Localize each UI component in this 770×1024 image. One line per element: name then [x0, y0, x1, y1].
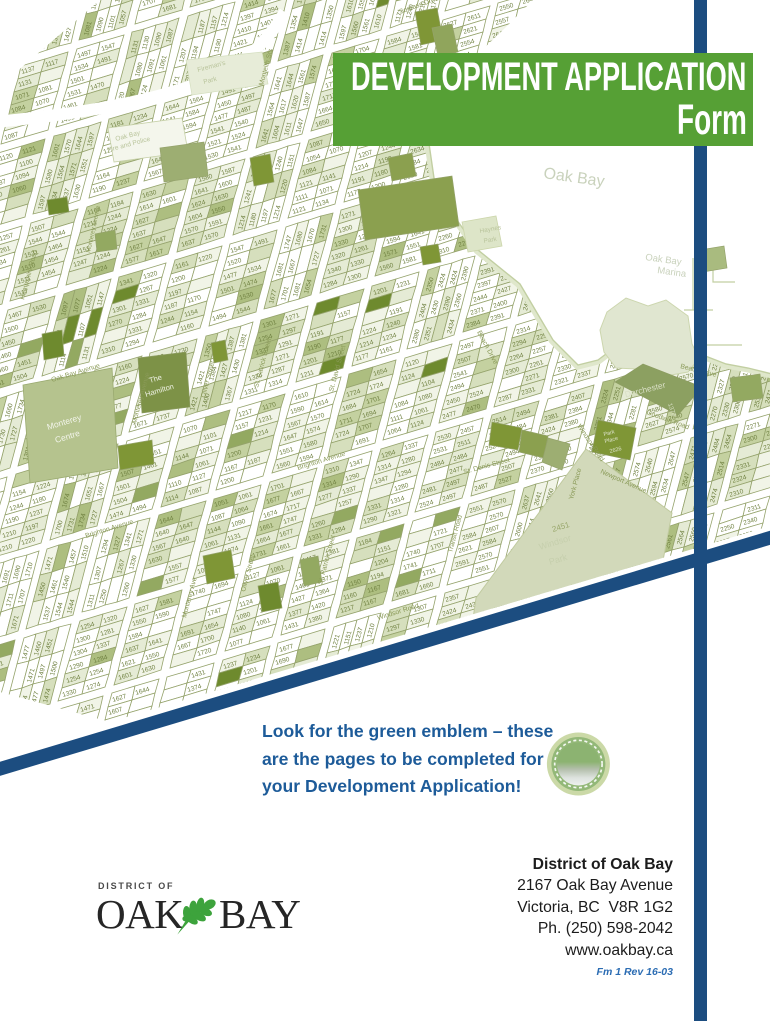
svg-text:1167: 1167 [209, 713, 225, 724]
svg-text:2327: 2327 [542, 613, 558, 624]
svg-text:2321: 2321 [566, 606, 582, 617]
svg-text:2370: 2370 [431, 647, 447, 658]
svg-text:1360: 1360 [58, 3, 69, 19]
svg-text:1320: 1320 [33, 722, 44, 738]
svg-text:1744: 1744 [284, 703, 300, 714]
svg-text:1437: 1437 [150, 743, 166, 754]
svg-text:2384: 2384 [594, 610, 610, 621]
svg-text:1341: 1341 [399, 656, 415, 667]
svg-text:2284: 2284 [510, 623, 526, 634]
svg-text:1247: 1247 [340, 679, 351, 695]
svg-text:1697: 1697 [288, 690, 304, 701]
svg-text:2297: 2297 [732, 556, 748, 567]
svg-text:1391: 1391 [46, 7, 57, 23]
svg-text:2304: 2304 [562, 620, 578, 631]
svg-text:2430: 2430 [621, 590, 637, 601]
svg-text:1331: 1331 [376, 663, 392, 674]
svg-text:2434: 2434 [428, 660, 444, 671]
svg-text:1264: 1264 [0, 783, 6, 799]
svg-text:1487: 1487 [39, 777, 55, 788]
svg-text:1437: 1437 [70, 0, 81, 16]
svg-text:1220: 1220 [352, 676, 363, 692]
svg-text:1424: 1424 [177, 723, 193, 734]
svg-text:1220: 1220 [329, 683, 340, 699]
svg-text:1320: 1320 [0, 733, 9, 749]
svg-text:1470: 1470 [53, 723, 69, 734]
svg-text:2397: 2397 [598, 597, 614, 608]
svg-text:1477: 1477 [42, 763, 58, 774]
svg-text:1644: 1644 [98, 747, 114, 758]
svg-text:2410: 2410 [455, 640, 471, 651]
svg-text:1704: 1704 [264, 697, 280, 708]
svg-text:1261: 1261 [372, 677, 388, 688]
svg-text:1247: 1247 [232, 706, 248, 717]
svg-text:1547: 1547 [66, 756, 82, 767]
svg-text:1470: 1470 [62, 770, 78, 781]
svg-text:1460: 1460 [7, 697, 18, 713]
svg-text:1440: 1440 [153, 730, 169, 741]
svg-text:1267: 1267 [19, 776, 30, 792]
svg-text:1584: 1584 [94, 760, 110, 771]
svg-text:1414: 1414 [173, 736, 189, 747]
svg-text:1327: 1327 [21, 726, 32, 742]
svg-text:1604: 1604 [121, 740, 137, 751]
svg-text:1277: 1277 [395, 670, 411, 681]
svg-text:1234: 1234 [205, 727, 221, 738]
svg-text:2334: 2334 [507, 636, 523, 647]
svg-text:2331: 2331 [709, 563, 725, 574]
svg-text:1497: 1497 [76, 716, 92, 727]
svg-text:1271: 1271 [7, 779, 18, 795]
svg-text:1351: 1351 [41, 0, 52, 1]
svg-text:2330: 2330 [483, 643, 499, 654]
svg-text:2621: 2621 [650, 586, 661, 602]
svg-text:1590: 1590 [118, 753, 134, 764]
svg-text:1520: 1520 [56, 710, 72, 721]
svg-text:1201: 1201 [229, 720, 245, 731]
svg-text:1381: 1381 [28, 36, 39, 52]
svg-text:2267: 2267 [487, 630, 503, 641]
